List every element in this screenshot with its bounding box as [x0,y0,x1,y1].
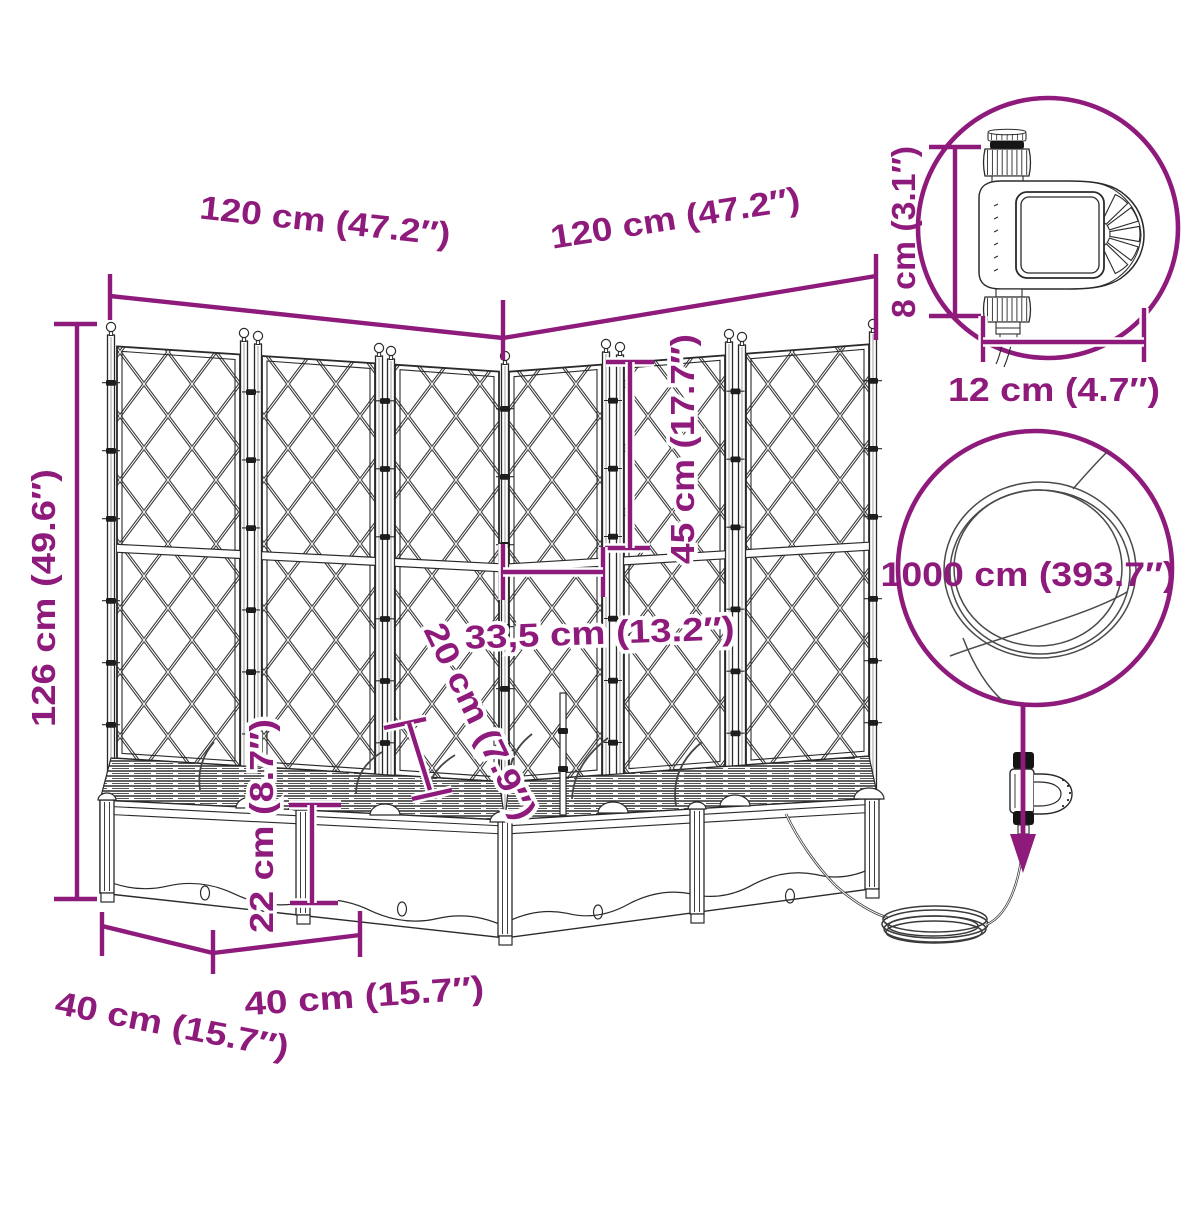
svg-text:45 cm (17.7″): 45 cm (17.7″) [664,334,701,564]
svg-text:22 cm (8.7″): 22 cm (8.7″) [243,719,280,933]
svg-text:126 cm (49.6″): 126 cm (49.6″) [25,469,62,727]
svg-text:8 cm (3.1″): 8 cm (3.1″) [885,146,922,318]
svg-text:12 cm (4.7″): 12 cm (4.7″) [948,371,1160,408]
svg-text:1000 cm (393.7″): 1000 cm (393.7″) [881,556,1176,594]
